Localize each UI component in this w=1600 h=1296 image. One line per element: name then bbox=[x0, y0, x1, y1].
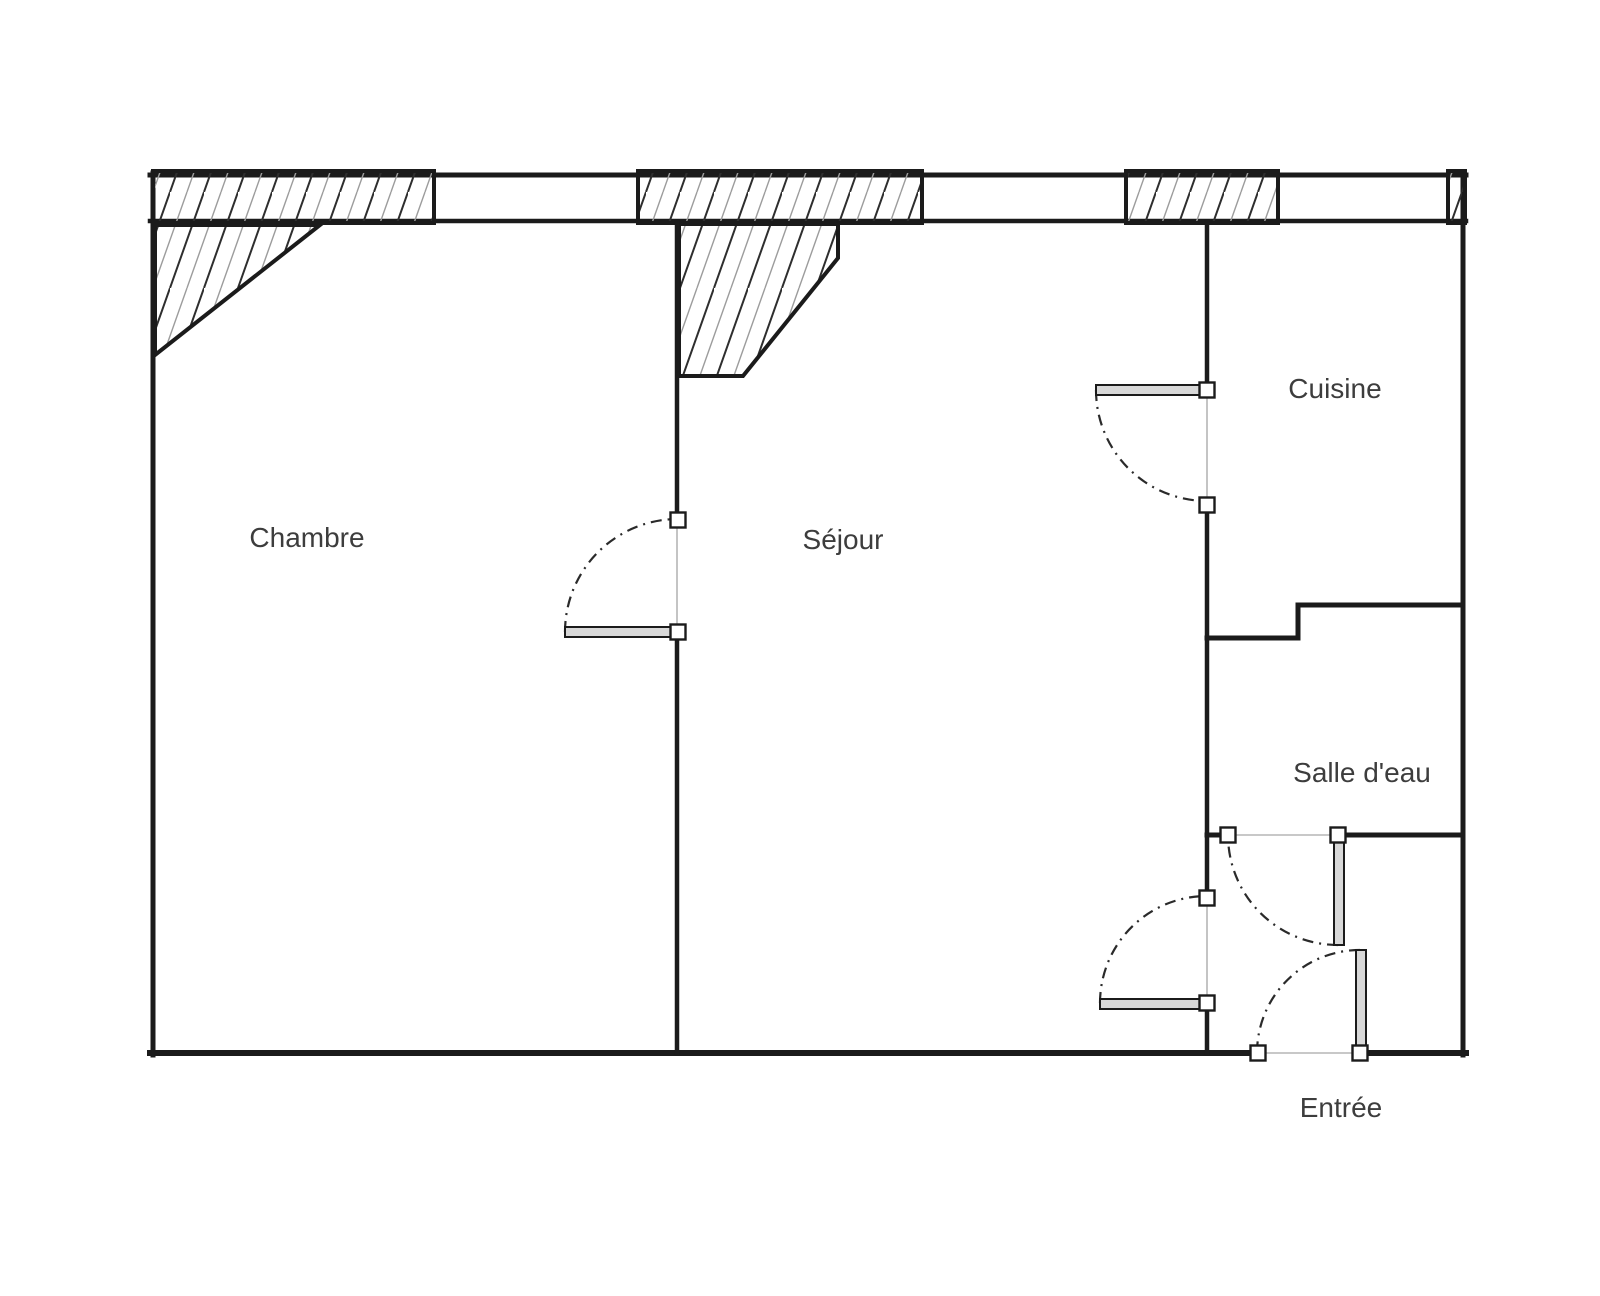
door-leaf-chambre bbox=[565, 627, 671, 637]
jamb-entree-right bbox=[1353, 1046, 1368, 1061]
swing-arc-chambre-door bbox=[565, 519, 678, 632]
swing-arc-cuisine-door bbox=[1096, 390, 1207, 501]
hatch-section-top-4 bbox=[1448, 171, 1465, 223]
jamb-cuisine-top bbox=[1200, 383, 1215, 398]
jamb-chambre-bottom bbox=[671, 625, 686, 640]
floor-plan: Chambre Séjour Cuisine Salle d'eau Entré… bbox=[0, 0, 1600, 1296]
floor-plan-drawing: Chambre Séjour Cuisine Salle d'eau Entré… bbox=[0, 0, 1600, 1296]
wall-cuisine-salledeau-step bbox=[1207, 605, 1463, 638]
hatch-section-top-3 bbox=[1126, 171, 1278, 223]
door-jambs bbox=[671, 383, 1368, 1061]
hatch-corner-chambre bbox=[155, 225, 320, 355]
door-swings bbox=[565, 390, 1360, 1053]
outer-walls bbox=[150, 173, 1466, 1055]
door-leaf-sejour bbox=[1100, 999, 1200, 1009]
room-label-salle-deau: Salle d'eau bbox=[1293, 757, 1431, 788]
jamb-sejour-bottom bbox=[1200, 996, 1215, 1011]
door-leaves bbox=[565, 385, 1366, 1050]
swing-arc-entree-door bbox=[1257, 950, 1360, 1053]
door-leaf-salledeau bbox=[1334, 841, 1344, 945]
swing-arc-salledeau-door bbox=[1228, 835, 1338, 945]
door-leaf-entree bbox=[1356, 950, 1366, 1050]
jamb-sejour-top bbox=[1200, 891, 1215, 906]
hatch-section-top-2 bbox=[638, 171, 922, 223]
room-label-chambre: Chambre bbox=[249, 522, 364, 553]
jamb-entree-left bbox=[1251, 1046, 1266, 1061]
hatch-pier-sejour bbox=[679, 224, 838, 376]
room-labels: Chambre Séjour Cuisine Salle d'eau Entré… bbox=[249, 373, 1430, 1123]
jamb-cuisine-bottom bbox=[1200, 498, 1215, 513]
hatch-section-top-1 bbox=[153, 171, 434, 223]
jamb-salledeau-left bbox=[1221, 828, 1236, 843]
door-leaf-cuisine bbox=[1096, 385, 1200, 395]
hatched-wall-sections bbox=[153, 171, 1465, 376]
jamb-salledeau-right bbox=[1331, 828, 1346, 843]
jamb-chambre-top bbox=[671, 513, 686, 528]
swing-arc-sejour-door bbox=[1100, 896, 1207, 1003]
room-label-entree: Entrée bbox=[1300, 1092, 1383, 1123]
room-label-cuisine: Cuisine bbox=[1288, 373, 1381, 404]
room-label-sejour: Séjour bbox=[803, 524, 884, 555]
partition-walls bbox=[677, 222, 1463, 1053]
door-openings bbox=[677, 390, 1360, 1053]
